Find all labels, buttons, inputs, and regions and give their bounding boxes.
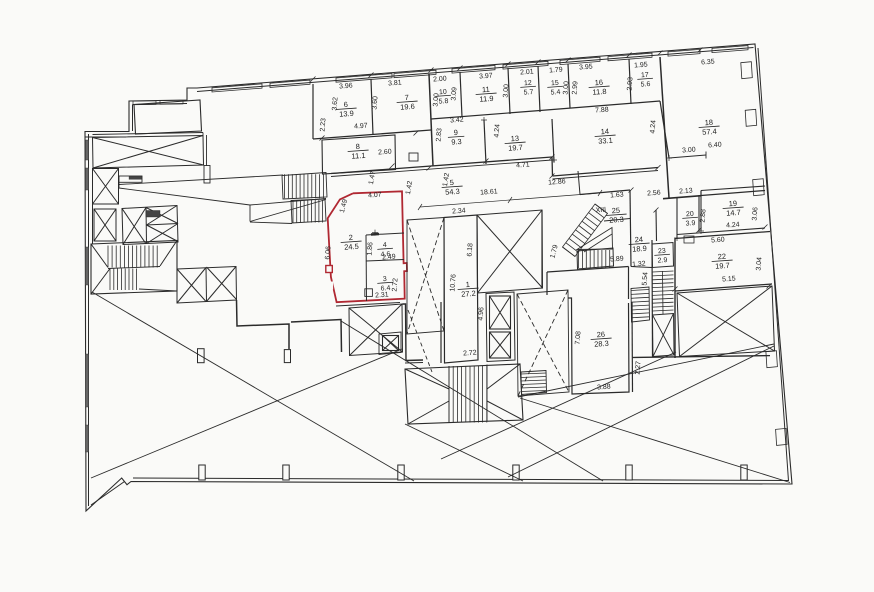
svg-text:17: 17 bbox=[641, 72, 649, 80]
svg-text:57.4: 57.4 bbox=[702, 127, 717, 137]
svg-text:7: 7 bbox=[404, 93, 409, 102]
svg-text:22: 22 bbox=[717, 252, 726, 262]
svg-text:4.97: 4.97 bbox=[354, 123, 368, 131]
svg-text:5.89: 5.89 bbox=[610, 256, 624, 264]
svg-text:2.99: 2.99 bbox=[572, 81, 580, 95]
svg-text:3.9: 3.9 bbox=[685, 220, 695, 228]
svg-text:2.27: 2.27 bbox=[635, 361, 643, 375]
svg-text:3.88: 3.88 bbox=[597, 384, 611, 392]
svg-text:XIII: XIII bbox=[595, 207, 606, 215]
svg-text:2.23: 2.23 bbox=[320, 118, 328, 132]
svg-text:11.8: 11.8 bbox=[592, 87, 607, 97]
svg-text:11: 11 bbox=[482, 85, 490, 95]
svg-text:3.95: 3.95 bbox=[579, 64, 593, 72]
svg-text:1.95: 1.95 bbox=[634, 62, 648, 70]
svg-text:2.83: 2.83 bbox=[436, 128, 444, 142]
svg-text:4.24: 4.24 bbox=[650, 120, 658, 134]
svg-text:3.97: 3.97 bbox=[479, 73, 493, 81]
svg-text:2.34: 2.34 bbox=[452, 208, 466, 216]
svg-text:2.88: 2.88 bbox=[700, 209, 708, 223]
svg-text:2.31: 2.31 bbox=[375, 292, 389, 300]
svg-text:11.9: 11.9 bbox=[479, 94, 494, 104]
svg-text:3.42: 3.42 bbox=[450, 117, 464, 125]
svg-text:9.3: 9.3 bbox=[451, 137, 462, 147]
svg-text:19: 19 bbox=[728, 199, 737, 209]
svg-text:3: 3 bbox=[383, 276, 387, 283]
svg-text:4.96: 4.96 bbox=[478, 307, 486, 321]
svg-text:3.62: 3.62 bbox=[332, 97, 340, 111]
svg-text:6: 6 bbox=[343, 100, 348, 109]
svg-text:18.9: 18.9 bbox=[632, 244, 647, 254]
svg-text:16: 16 bbox=[594, 78, 603, 88]
svg-text:13: 13 bbox=[510, 134, 519, 144]
svg-text:3.81: 3.81 bbox=[388, 80, 402, 88]
svg-text:2.49: 2.49 bbox=[382, 254, 396, 262]
svg-text:5.15: 5.15 bbox=[722, 276, 736, 284]
svg-text:1: 1 bbox=[465, 280, 470, 289]
svg-text:14: 14 bbox=[600, 127, 609, 137]
svg-text:4.07: 4.07 bbox=[368, 192, 382, 200]
svg-text:3.00: 3.00 bbox=[563, 81, 571, 95]
svg-text:1.32: 1.32 bbox=[632, 261, 646, 269]
svg-text:18.61: 18.61 bbox=[480, 188, 498, 196]
svg-text:10.76: 10.76 bbox=[449, 274, 457, 292]
svg-text:19.6: 19.6 bbox=[400, 102, 415, 112]
svg-text:6.35: 6.35 bbox=[701, 59, 715, 67]
svg-text:3.60: 3.60 bbox=[372, 96, 380, 110]
svg-text:12.86: 12.86 bbox=[548, 178, 566, 186]
svg-text:7.08: 7.08 bbox=[575, 331, 583, 345]
svg-text:2.93: 2.93 bbox=[627, 77, 635, 91]
svg-text:9: 9 bbox=[453, 128, 458, 137]
svg-text:33.1: 33.1 bbox=[598, 136, 613, 146]
svg-text:18: 18 bbox=[704, 118, 713, 128]
svg-text:13.9: 13.9 bbox=[339, 109, 354, 119]
svg-text:25: 25 bbox=[611, 206, 620, 216]
svg-text:3.09: 3.09 bbox=[451, 87, 459, 101]
svg-text:5.60: 5.60 bbox=[711, 237, 725, 245]
svg-text:27.2: 27.2 bbox=[461, 289, 476, 299]
svg-text:3.96: 3.96 bbox=[339, 83, 353, 91]
svg-text:5.7: 5.7 bbox=[523, 89, 533, 97]
svg-text:6.40: 6.40 bbox=[708, 142, 722, 150]
svg-text:4.24: 4.24 bbox=[726, 222, 740, 230]
svg-text:3.00: 3.00 bbox=[503, 84, 511, 98]
svg-text:12: 12 bbox=[524, 80, 532, 88]
svg-text:2.9: 2.9 bbox=[657, 257, 667, 265]
svg-text:15: 15 bbox=[551, 80, 559, 88]
svg-text:2.56: 2.56 bbox=[647, 190, 661, 198]
svg-text:19.7: 19.7 bbox=[715, 261, 730, 271]
svg-text:2.13: 2.13 bbox=[679, 188, 693, 196]
svg-text:7.88: 7.88 bbox=[595, 107, 609, 115]
svg-text:1.63: 1.63 bbox=[610, 192, 624, 200]
svg-text:3.00: 3.00 bbox=[682, 147, 696, 155]
svg-text:6.06: 6.06 bbox=[325, 246, 333, 260]
svg-text:6.18: 6.18 bbox=[467, 243, 475, 257]
svg-text:20.3: 20.3 bbox=[609, 215, 624, 225]
svg-text:2.01: 2.01 bbox=[520, 69, 534, 77]
svg-text:20: 20 bbox=[686, 211, 694, 219]
svg-text:19.7: 19.7 bbox=[508, 143, 523, 153]
svg-text:4.71: 4.71 bbox=[516, 162, 530, 170]
svg-text:2.72: 2.72 bbox=[463, 350, 477, 358]
svg-text:8: 8 bbox=[355, 142, 360, 151]
svg-text:2.60: 2.60 bbox=[378, 149, 392, 157]
svg-text:1.86: 1.86 bbox=[367, 242, 375, 256]
svg-text:4: 4 bbox=[383, 242, 387, 249]
svg-text:2.72: 2.72 bbox=[392, 278, 400, 292]
svg-text:5.4: 5.4 bbox=[550, 89, 560, 97]
svg-text:5.6: 5.6 bbox=[640, 81, 650, 89]
svg-text:14.7: 14.7 bbox=[726, 208, 741, 218]
svg-text:54.3: 54.3 bbox=[445, 187, 460, 197]
svg-text:24.5: 24.5 bbox=[344, 242, 359, 252]
svg-text:3.06: 3.06 bbox=[752, 207, 760, 221]
svg-text:2: 2 bbox=[348, 233, 353, 242]
svg-text:28.3: 28.3 bbox=[594, 339, 609, 349]
svg-text:4.24: 4.24 bbox=[494, 124, 502, 138]
svg-text:2.00: 2.00 bbox=[433, 76, 447, 84]
svg-text:1.79: 1.79 bbox=[549, 67, 563, 75]
svg-text:3.00: 3.00 bbox=[433, 93, 441, 107]
svg-text:24: 24 bbox=[634, 235, 643, 245]
svg-text:23: 23 bbox=[658, 248, 666, 256]
svg-text:26: 26 bbox=[596, 330, 605, 340]
svg-text:11.1: 11.1 bbox=[351, 151, 366, 161]
svg-text:3.04: 3.04 bbox=[756, 257, 764, 271]
svg-text:5.54: 5.54 bbox=[642, 272, 650, 286]
